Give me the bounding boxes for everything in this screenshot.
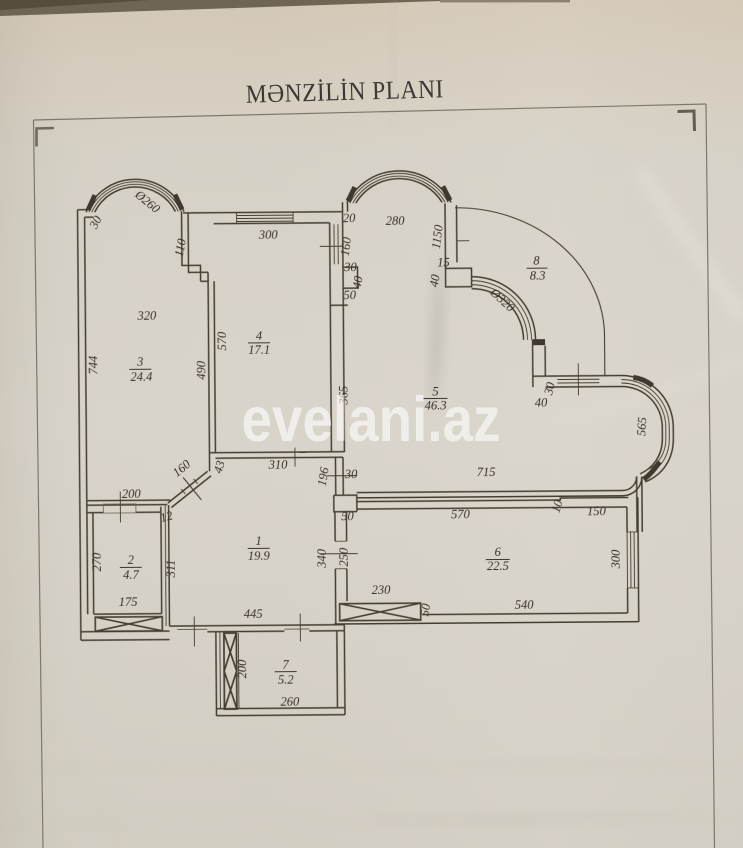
svg-text:570: 570 [451,507,471,521]
svg-text:490: 490 [194,360,208,380]
svg-text:445: 445 [244,607,263,621]
svg-text:260: 260 [280,695,300,709]
svg-text:570: 570 [215,331,229,351]
svg-text:230: 230 [372,583,392,597]
svg-text:4.7: 4.7 [123,568,139,582]
svg-text:6: 6 [495,545,502,559]
svg-text:17.1: 17.1 [248,343,270,357]
svg-text:8: 8 [533,254,540,268]
svg-text:200: 200 [122,487,142,501]
svg-text:5.2: 5.2 [278,673,294,687]
svg-text:evelani.az: evelani.az [242,385,501,455]
svg-text:19.9: 19.9 [248,549,271,563]
svg-text:270: 270 [90,552,104,572]
svg-text:565: 565 [634,417,649,437]
svg-text:175: 175 [119,595,138,609]
svg-text:7: 7 [282,658,289,672]
svg-text:24.4: 24.4 [130,370,152,384]
svg-text:310: 310 [268,458,289,472]
svg-text:50: 50 [343,288,356,302]
svg-text:40: 40 [535,396,548,410]
svg-text:8.3: 8.3 [530,269,546,283]
svg-text:320: 320 [136,309,157,323]
svg-text:300: 300 [258,228,279,242]
svg-text:2: 2 [128,553,134,567]
svg-text:311: 311 [164,560,178,579]
svg-text:30: 30 [343,260,357,274]
svg-text:715: 715 [477,465,496,479]
svg-text:15: 15 [437,255,450,269]
svg-text:280: 280 [386,214,406,228]
svg-text:300: 300 [609,549,623,570]
svg-text:50: 50 [341,509,354,523]
svg-text:744: 744 [86,356,100,375]
svg-text:4: 4 [256,329,262,343]
svg-text:160: 160 [338,236,354,257]
svg-text:3: 3 [136,355,143,369]
svg-text:340: 340 [315,548,329,569]
svg-text:22.5: 22.5 [487,559,509,573]
svg-text:1: 1 [255,534,261,548]
svg-text:250: 250 [337,547,351,567]
svg-text:30: 30 [344,467,358,481]
svg-text:MƏNZİLİN PLANI: MƏNZİLİN PLANI [245,74,444,109]
svg-text:20: 20 [343,211,356,225]
svg-text:540: 540 [515,598,535,612]
svg-text:150: 150 [587,504,607,518]
svg-text:200: 200 [235,659,249,679]
